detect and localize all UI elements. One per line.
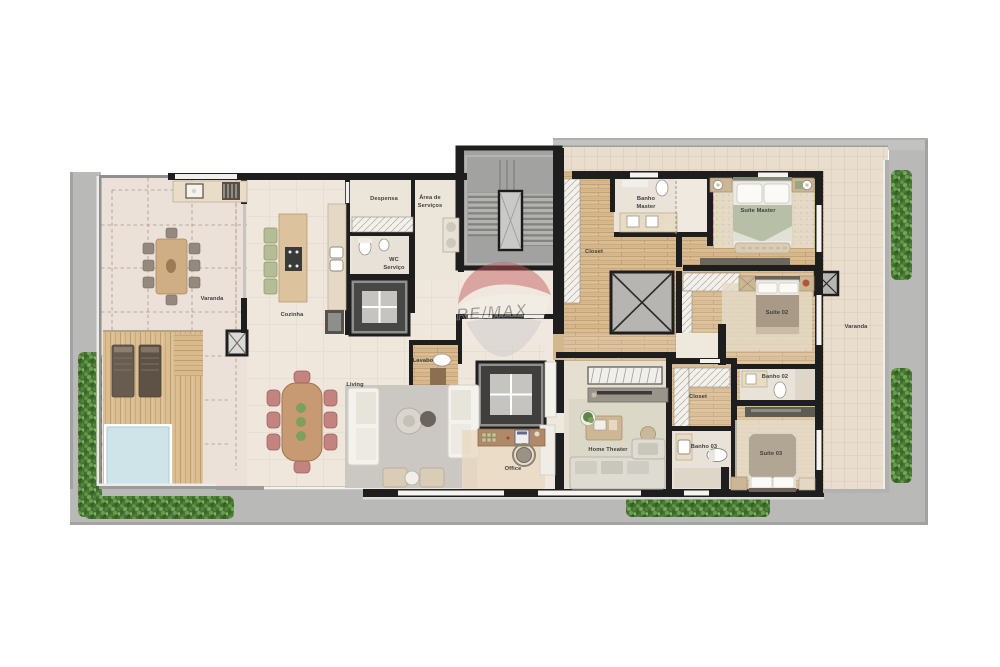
svg-text:Serviços: Serviços — [418, 203, 443, 209]
svg-text:Home Theater: Home Theater — [588, 447, 628, 453]
svg-text:Varanda: Varanda — [845, 324, 869, 330]
svg-text:Banho 03: Banho 03 — [691, 444, 717, 450]
svg-text:WC: WC — [389, 257, 399, 263]
svg-text:Living: Living — [346, 382, 364, 388]
svg-text:Serviço: Serviço — [383, 265, 405, 271]
svg-text:Banho 02: Banho 02 — [762, 374, 788, 380]
svg-text:Suíte 03: Suíte 03 — [760, 451, 783, 457]
svg-text:Office: Office — [505, 466, 522, 472]
svg-text:Closet: Closet — [585, 249, 603, 255]
svg-text:Suíte 02: Suíte 02 — [766, 310, 789, 316]
svg-text:Closet: Closet — [689, 394, 707, 400]
svg-text:Área de: Área de — [419, 194, 441, 201]
svg-text:Suíte Master: Suíte Master — [740, 208, 776, 214]
svg-text:Banho: Banho — [637, 196, 656, 202]
svg-text:Lavabo: Lavabo — [413, 358, 434, 364]
svg-text:Varanda: Varanda — [201, 296, 225, 302]
svg-text:Master: Master — [637, 204, 657, 210]
svg-text:Cozinha: Cozinha — [281, 312, 305, 318]
svg-text:Despensa: Despensa — [370, 196, 398, 202]
